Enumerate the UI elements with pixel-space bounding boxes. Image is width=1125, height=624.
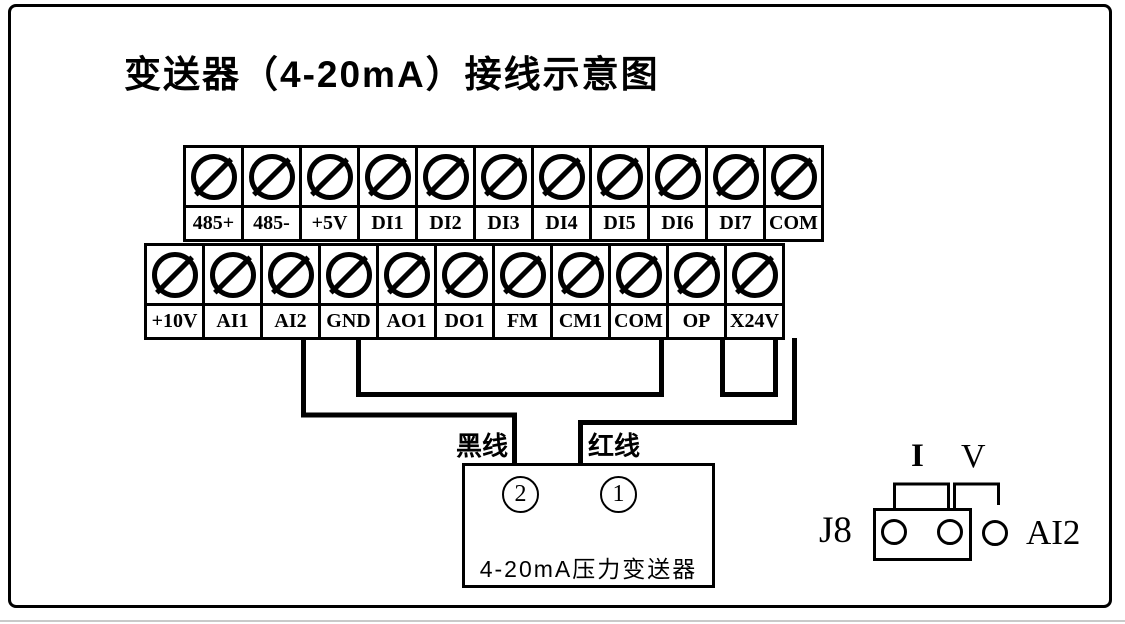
terminal-label: OP — [669, 306, 724, 337]
terminal-cell: DI4 — [531, 145, 592, 242]
terminal-label: 485+ — [186, 208, 241, 239]
screw-terminal-icon — [152, 252, 198, 298]
screw-box — [495, 246, 550, 306]
screw-box — [650, 148, 705, 208]
terminal-cell: DI7 — [705, 145, 766, 242]
terminal-cell: DI3 — [473, 145, 534, 242]
screw-box — [147, 246, 202, 306]
screw-box — [669, 246, 724, 306]
terminal-label: DI1 — [360, 208, 415, 239]
screw-box — [611, 246, 666, 306]
screw-terminal-icon — [616, 252, 662, 298]
terminal-label: FM — [495, 306, 550, 337]
screw-terminal-icon — [210, 252, 256, 298]
terminal-cell: AI1 — [202, 243, 263, 340]
terminal-cell: 485- — [241, 145, 302, 242]
terminal-label: X24V — [727, 306, 782, 337]
screw-terminal-icon — [674, 252, 720, 298]
current-mode-label: I — [911, 438, 924, 475]
jumper-pin-3 — [982, 520, 1008, 546]
screw-terminal-icon — [655, 154, 701, 200]
terminal-label: DI2 — [418, 208, 473, 239]
screw-terminal-icon — [713, 154, 759, 200]
terminal-label: CM1 — [553, 306, 608, 337]
terminal-cell: X24V — [724, 243, 785, 340]
terminal-row-lower: +10VAI1AI2GNDAO1DO1FMCM1COMOPX24V — [144, 243, 785, 340]
terminal-cell: COM — [763, 145, 824, 242]
terminal-label: +5V — [302, 208, 357, 239]
screw-box — [418, 148, 473, 208]
screw-box — [205, 246, 260, 306]
terminal-label: AO1 — [379, 306, 434, 337]
terminal-cell: FM — [492, 243, 553, 340]
screw-box — [186, 148, 241, 208]
terminal-cell: COM — [608, 243, 669, 340]
screw-terminal-icon — [423, 154, 469, 200]
screw-box — [360, 148, 415, 208]
black-wire-label: 黑线 — [456, 426, 508, 463]
terminal-label: DI6 — [650, 208, 705, 239]
transmitter-terminal-2: 2 — [502, 476, 539, 513]
terminal-label: COM — [766, 208, 821, 239]
terminal-label: GND — [321, 306, 376, 337]
screw-box — [553, 246, 608, 306]
screw-terminal-icon — [326, 252, 372, 298]
screw-box — [379, 246, 434, 306]
screw-box — [263, 246, 318, 306]
screw-terminal-icon — [384, 252, 430, 298]
terminal-cell: DI6 — [647, 145, 708, 242]
screw-terminal-icon — [597, 154, 643, 200]
screw-terminal-icon — [539, 154, 585, 200]
screw-box — [437, 246, 492, 306]
screw-terminal-icon — [268, 252, 314, 298]
screw-box — [534, 148, 589, 208]
terminal-cell: 485+ — [183, 145, 244, 242]
jumper-name-label: J8 — [819, 509, 852, 552]
diagram-title: 变送器（4-20mA）接线示意图 — [124, 44, 660, 98]
screw-box — [766, 148, 821, 208]
screw-terminal-icon — [191, 154, 237, 200]
screw-terminal-icon — [481, 154, 527, 200]
screw-terminal-icon — [771, 154, 817, 200]
terminal-cell: +10V — [144, 243, 205, 340]
screw-box — [708, 148, 763, 208]
terminal-label: DO1 — [437, 306, 492, 337]
terminal-label: AI2 — [263, 306, 318, 337]
screw-terminal-icon — [732, 252, 778, 298]
terminal-row-upper: 485+485-+5VDI1DI2DI3DI4DI5DI6DI7COM — [183, 145, 824, 242]
terminal-cell: DI1 — [357, 145, 418, 242]
terminal-cell: AO1 — [376, 243, 437, 340]
screw-terminal-icon — [307, 154, 353, 200]
screw-terminal-icon — [500, 252, 546, 298]
terminal-cell: CM1 — [550, 243, 611, 340]
voltage-mode-label: V — [961, 438, 986, 476]
screw-box — [727, 246, 782, 306]
terminal-label: +10V — [147, 306, 202, 337]
terminal-cell: DI5 — [589, 145, 650, 242]
screw-box — [476, 148, 531, 208]
screw-terminal-icon — [558, 252, 604, 298]
terminal-cell: AI2 — [260, 243, 321, 340]
terminal-label: DI7 — [708, 208, 763, 239]
terminal-label: DI4 — [534, 208, 589, 239]
screw-terminal-icon — [442, 252, 488, 298]
terminal-cell: DI2 — [415, 145, 476, 242]
screw-box — [244, 148, 299, 208]
terminal-label: COM — [611, 306, 666, 337]
terminal-label: DI5 — [592, 208, 647, 239]
transmitter-terminal-1: 1 — [600, 476, 637, 513]
terminal-cell: OP — [666, 243, 727, 340]
red-wire-label: 红线 — [588, 426, 640, 463]
screw-terminal-icon — [365, 154, 411, 200]
terminal-label: 485- — [244, 208, 299, 239]
pressure-transmitter-box: 2 1 4-20mA压力变送器 — [462, 463, 715, 588]
screw-box — [321, 246, 376, 306]
screw-box — [592, 148, 647, 208]
screw-box — [302, 148, 357, 208]
terminal-label: DI3 — [476, 208, 531, 239]
terminal-cell: GND — [318, 243, 379, 340]
transmitter-label: 4-20mA压力变送器 — [465, 550, 712, 584]
jumper-pin-2 — [937, 519, 963, 545]
terminal-cell: DO1 — [434, 243, 495, 340]
jumper-pin-1 — [881, 519, 907, 545]
screw-terminal-icon — [249, 154, 295, 200]
terminal-cell: +5V — [299, 145, 360, 242]
terminal-label: AI1 — [205, 306, 260, 337]
page-edge-line — [0, 620, 1125, 622]
wiring-diagram: 变送器（4-20mA）接线示意图 485+485-+5VDI1DI2DI3DI4… — [0, 0, 1125, 624]
jumper-channel-label: AI2 — [1026, 513, 1080, 553]
